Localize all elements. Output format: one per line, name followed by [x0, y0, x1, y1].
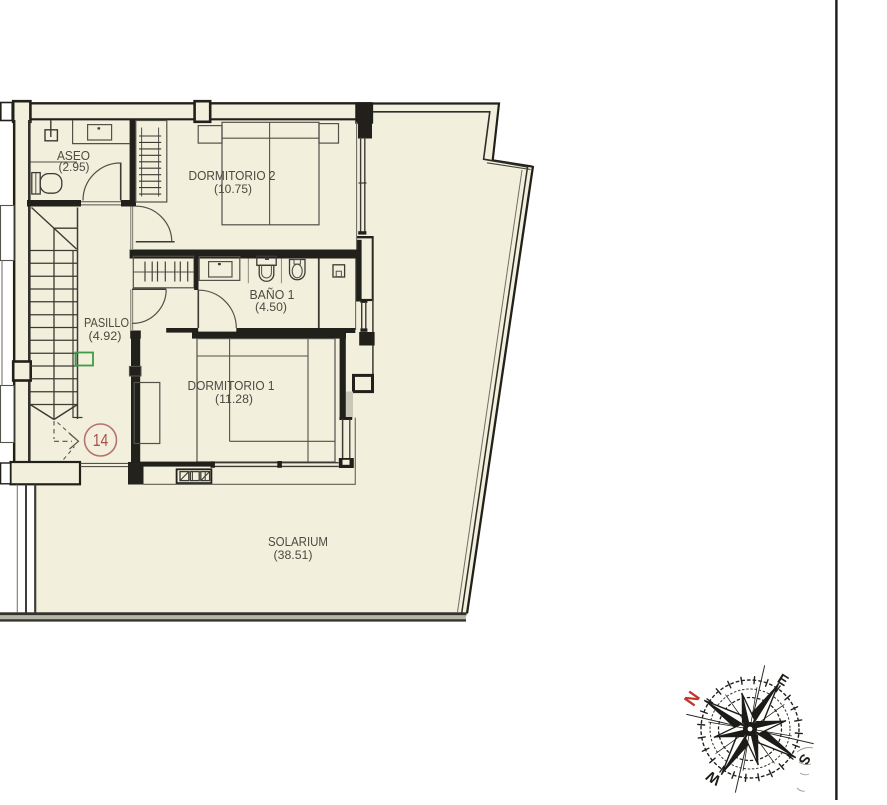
svg-text:(11.28): (11.28)	[215, 394, 253, 406]
svg-text:ASEO: ASEO	[57, 149, 90, 163]
svg-text:BAÑO 1: BAÑO 1	[250, 288, 295, 302]
svg-text:PASILLO: PASILLO	[84, 316, 129, 330]
svg-text:14: 14	[93, 430, 109, 450]
svg-text:DORMITORIO 2: DORMITORIO 2	[189, 169, 276, 183]
svg-text:(10.75): (10.75)	[214, 184, 252, 196]
svg-text:(4.92): (4.92)	[89, 331, 122, 343]
svg-text:SOLARIUM: SOLARIUM	[268, 534, 328, 549]
svg-text:DORMITORIO 1: DORMITORIO 1	[188, 379, 275, 393]
svg-text:(4.50): (4.50)	[255, 302, 287, 314]
svg-text:(2.95): (2.95)	[59, 162, 90, 174]
svg-text:(38.51): (38.51)	[274, 550, 313, 562]
